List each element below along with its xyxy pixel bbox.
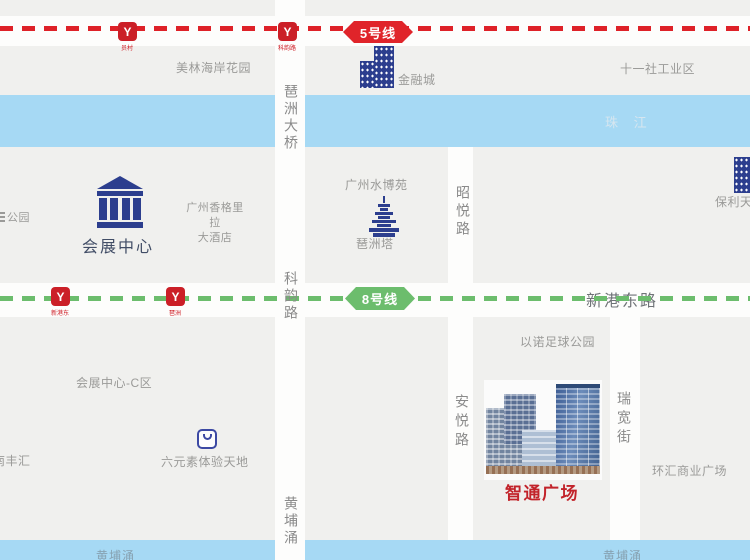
metro-logo-icon: Y bbox=[171, 291, 179, 303]
river-label-huangpuyong-left: 黄埔涌 bbox=[96, 547, 135, 560]
metro-station-yuancun[interactable]: Y bbox=[118, 22, 137, 41]
exhibition-center-icon bbox=[97, 176, 143, 229]
road-label-anyue: 安悦路 bbox=[452, 394, 472, 451]
road-label-ruikuan: 瑞宽街 bbox=[614, 391, 634, 448]
poi-park-partial: 公园 bbox=[7, 209, 30, 225]
river-label-huangpuyong-right: 黄埔涌 bbox=[603, 547, 642, 560]
road-label-pazhou-bridge: 琶洲大桥 bbox=[281, 84, 301, 152]
station-label-keyunlu: 科韵路 bbox=[265, 43, 309, 52]
shopping-bag-icon bbox=[197, 429, 217, 449]
badge-line5: 5号线 bbox=[343, 21, 413, 43]
metro-logo-icon: Y bbox=[123, 26, 131, 38]
poi-shangrila-line1: 广州香格里拉 bbox=[186, 202, 244, 229]
poi-nanfenghui-partial: 南丰汇 bbox=[0, 452, 31, 469]
clipped-character-fragment bbox=[0, 212, 5, 222]
metro-logo-icon: Y bbox=[283, 26, 291, 38]
pagoda-icon bbox=[367, 196, 401, 234]
station-label-yuancun: 员村 bbox=[105, 43, 149, 52]
metro-station-keyunlu[interactable]: Y bbox=[278, 22, 297, 41]
poi-pazhou-ta: 琶洲塔 bbox=[356, 235, 394, 252]
road-label-keyun: 科韵路 bbox=[281, 271, 301, 322]
road-label-huangpuyong-bridge: 黄埔涌 bbox=[281, 496, 301, 547]
poi-shuiboyuan: 广州水博苑 bbox=[345, 176, 408, 193]
poi-jinrongcheng: 金融城 bbox=[398, 71, 436, 88]
metro-station-xingangdong[interactable]: Y bbox=[51, 287, 70, 306]
poi-liuyuansu: 六元素体验天地 bbox=[161, 453, 249, 470]
river-label-zhujiang: 珠 江 bbox=[605, 112, 653, 131]
poi-shangrila: 广州香格里拉 大酒店 bbox=[181, 201, 249, 246]
poi-shangrila-line2: 大酒店 bbox=[198, 232, 233, 244]
poi-shiyishe: 十一社工业区 bbox=[620, 60, 695, 77]
station-label-xingangdong: 新港东 bbox=[38, 308, 82, 317]
poi-huizhan-center: 会展中心 bbox=[82, 233, 154, 257]
poi-huizhan-c: 会展中心-C区 bbox=[76, 374, 152, 391]
clipped-building-icon bbox=[734, 157, 750, 193]
metro-logo-icon: Y bbox=[56, 291, 64, 303]
poi-yinuo: 以诺足球公园 bbox=[520, 333, 595, 350]
zhitong-plaza-building-image bbox=[484, 380, 602, 480]
poi-baoli-partial: 保利天 bbox=[715, 193, 750, 210]
office-towers-icon bbox=[360, 46, 394, 88]
poi-huanhui: 环汇商业广场 bbox=[652, 462, 727, 479]
road-label-zhaoyue: 昭悦路 bbox=[453, 185, 473, 239]
metro-station-pazhou[interactable]: Y bbox=[166, 287, 185, 306]
badge-line8: 8号线 bbox=[345, 287, 415, 310]
map-canvas[interactable]: 新港东路 Y 员村 Y 科韵路 5号线 Y 新港东 Y 琶洲 8号线 珠 江 黄… bbox=[0, 0, 750, 560]
poi-meilin: 美林海岸花园 bbox=[176, 59, 251, 76]
poi-zhitong-plaza: 智通广场 bbox=[505, 479, 579, 504]
station-label-pazhou: 琶洲 bbox=[153, 308, 197, 317]
